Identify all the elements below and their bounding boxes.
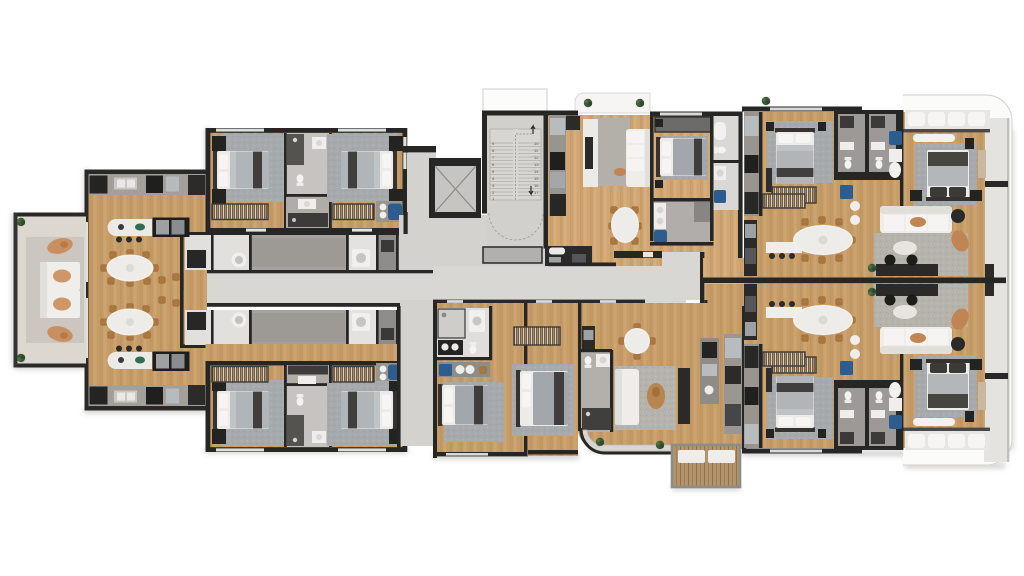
svg-text:12: 12 — [534, 155, 539, 160]
svg-text:16: 16 — [534, 183, 539, 188]
svg-text:17: 17 — [534, 190, 539, 195]
svg-text:13: 13 — [534, 162, 539, 167]
svg-text:10: 10 — [534, 141, 539, 146]
svg-text:14: 14 — [534, 169, 539, 174]
svg-text:15: 15 — [534, 176, 539, 181]
